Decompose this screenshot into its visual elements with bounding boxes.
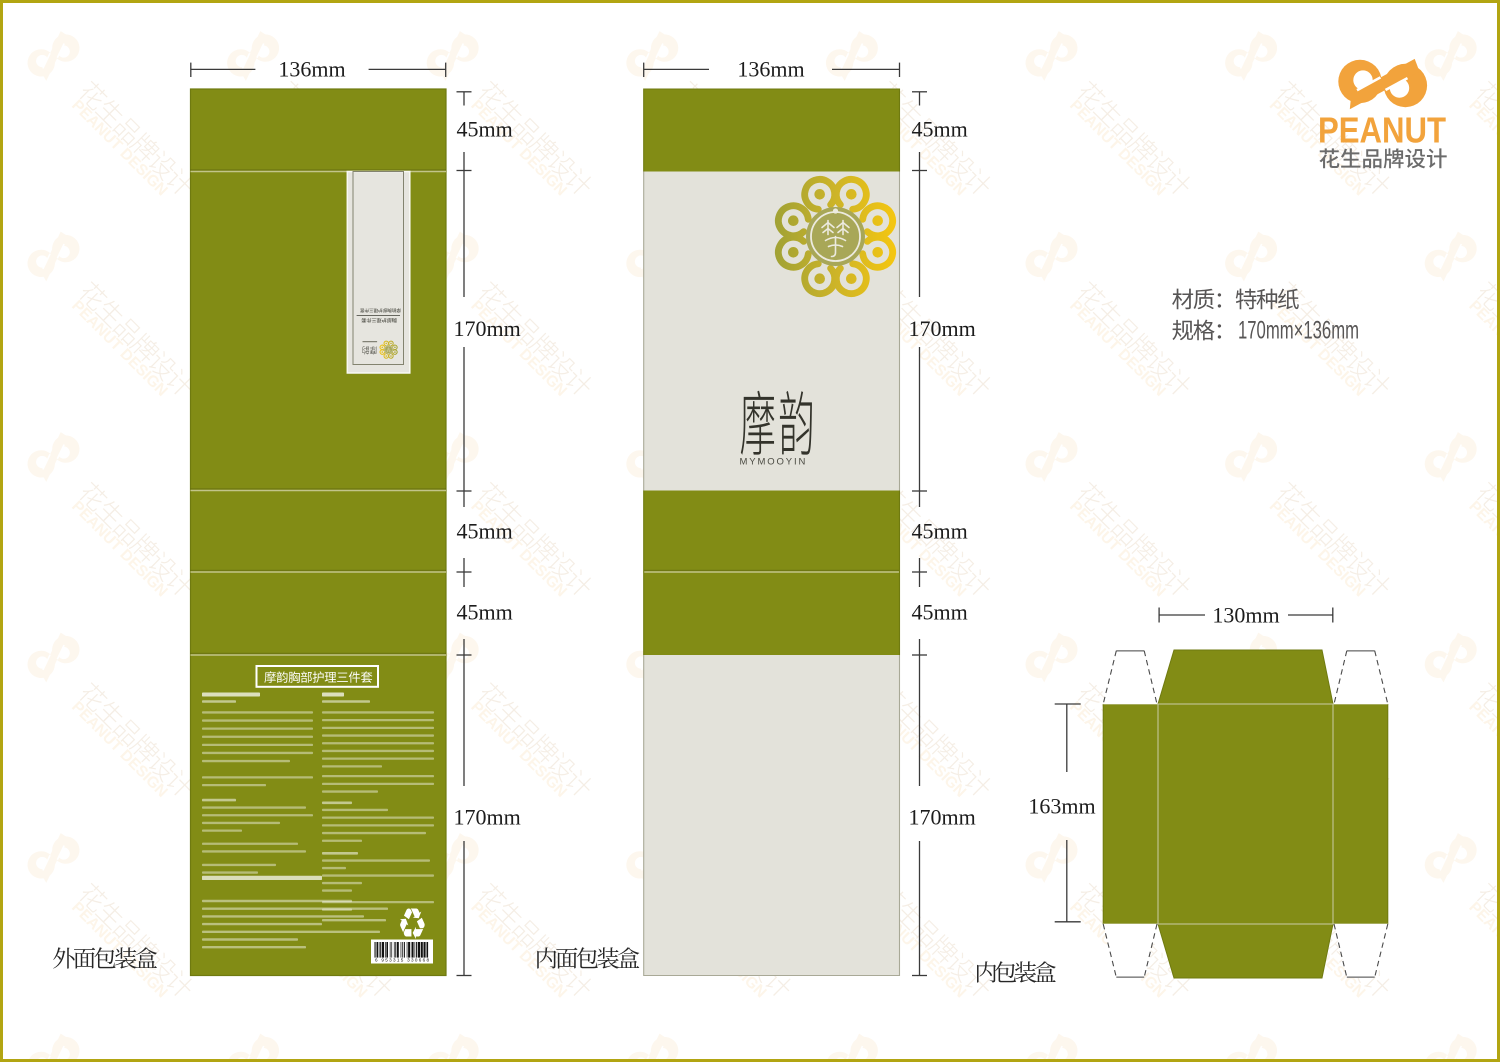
svg-text:130mm: 130mm [1212,602,1279,627]
svg-text:6 953315 330668: 6 953315 330668 [375,958,429,963]
svg-text:MYMOOYIN: MYMOOYIN [740,457,808,468]
svg-text:PEANUT: PEANUT [1318,110,1446,151]
svg-text:45mm: 45mm [912,116,968,141]
svg-text:170mm×136mm: 170mm×136mm [1238,317,1359,345]
svg-text:163mm: 163mm [1028,793,1095,818]
svg-text:170mm: 170mm [454,316,521,341]
svg-text:170mm: 170mm [909,804,976,829]
svg-text:136mm: 136mm [278,57,345,82]
svg-text:136mm: 136mm [737,57,804,82]
svg-text:170mm: 170mm [909,316,976,341]
svg-text:45mm: 45mm [457,116,513,141]
svg-text:170mm: 170mm [454,804,521,829]
svg-text:45mm: 45mm [912,518,968,543]
svg-text:45mm: 45mm [457,518,513,543]
svg-text:45mm: 45mm [457,600,513,625]
svg-text:45mm: 45mm [912,600,968,625]
